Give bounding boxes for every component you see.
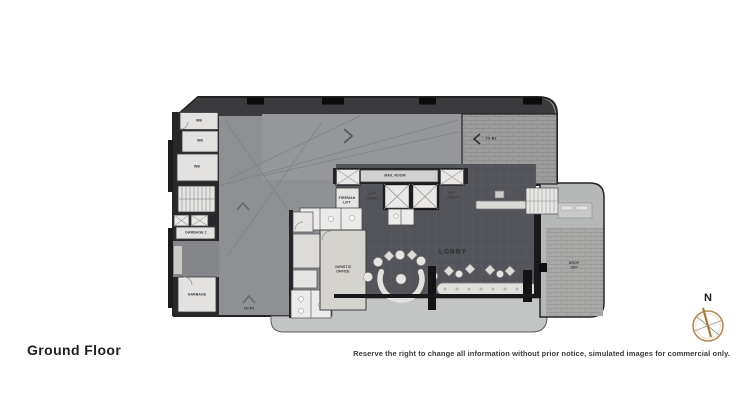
room-wb-2: [182, 131, 218, 152]
floor-plan-page: WB WB WB GARBAGE 1 GARBAGE TO P2 TO B1 F…: [0, 0, 745, 415]
page-title: Ground Floor: [27, 342, 121, 358]
top-wall-band: [176, 98, 555, 116]
room-wb-3: [177, 154, 218, 181]
mail-room: [352, 170, 438, 182]
long-bench: [437, 283, 536, 295]
disclaimer-text: Reserve the right to change all informat…: [353, 349, 730, 358]
vestibule: [558, 203, 592, 218]
compass-icon: N: [684, 292, 732, 352]
room-garbage-2: [178, 277, 216, 312]
compass-rose: [684, 305, 732, 347]
reception-desk: [476, 201, 526, 209]
compass-north-label: N: [684, 292, 732, 305]
garage-service-wing: [168, 112, 219, 316]
drop-off-area: [546, 228, 603, 316]
room-garbage-1: [176, 227, 215, 239]
